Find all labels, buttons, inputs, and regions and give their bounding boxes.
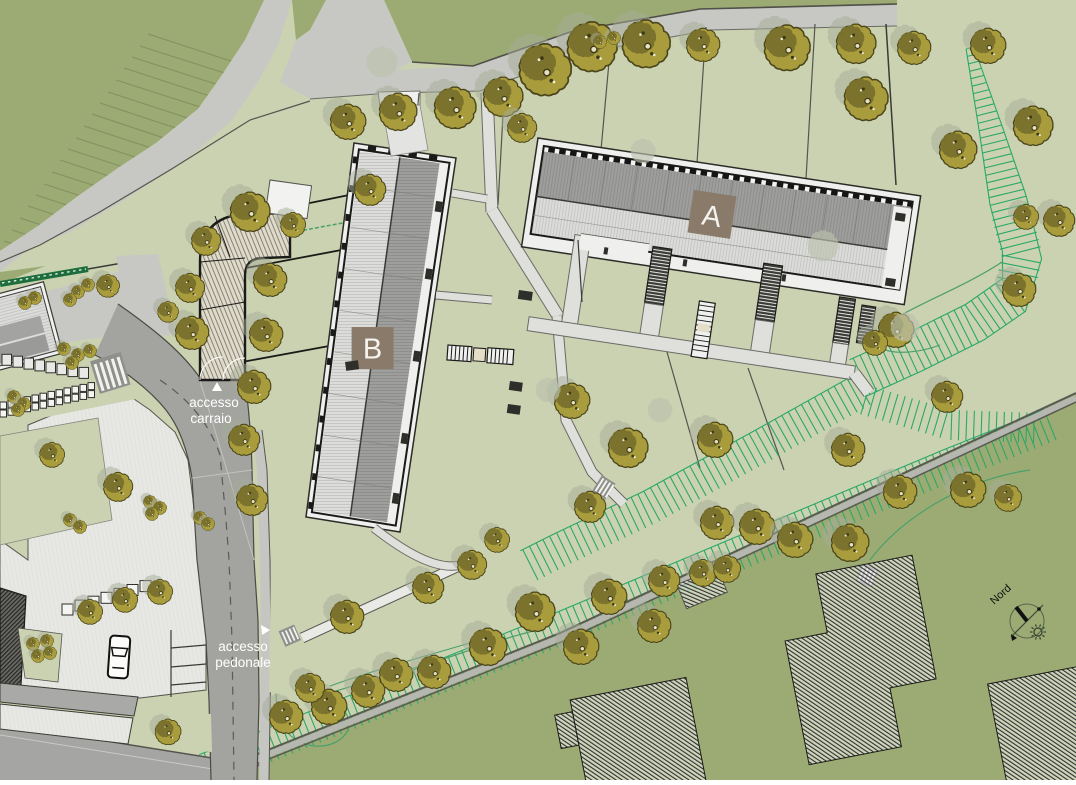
svg-text:accesso: accesso	[189, 395, 239, 410]
svg-text:carraio: carraio	[190, 411, 231, 426]
svg-text:pedonale: pedonale	[215, 655, 271, 670]
svg-text:B: B	[363, 334, 382, 366]
svg-text:accesso: accesso	[218, 639, 268, 654]
